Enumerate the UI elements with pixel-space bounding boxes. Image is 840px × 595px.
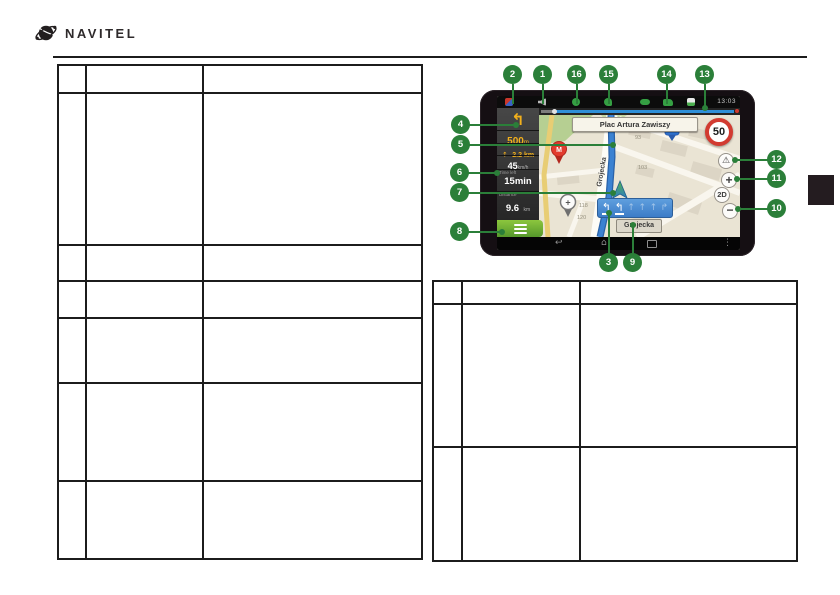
callout-dot	[702, 105, 708, 111]
street-sign: Plac Artura Zawiszy	[572, 117, 698, 132]
table-cell	[463, 305, 579, 446]
lane-arrow-icon: ↑	[638, 203, 646, 214]
callout-number: 3	[606, 257, 611, 268]
lane-arrow-icon: ↑	[650, 203, 658, 214]
device-screen: 13:03	[497, 96, 740, 250]
callout-4: 4	[451, 115, 470, 134]
route-progress-bar	[539, 108, 740, 115]
callout-1: 1	[533, 65, 552, 84]
callout-stem	[512, 84, 514, 104]
callout-number: 11	[771, 173, 781, 184]
callout-stem	[737, 159, 768, 161]
android-nav-bar: ↩ ⌂ ⋮	[497, 237, 740, 250]
table-cell	[204, 246, 421, 280]
header-divider	[53, 56, 807, 58]
table-cell	[87, 246, 202, 280]
callout-dot	[610, 142, 616, 148]
table-cell	[204, 384, 421, 480]
callout-stem	[608, 215, 610, 254]
callout-stem	[468, 172, 495, 174]
callout-2: 2	[503, 65, 522, 84]
table-cell	[204, 319, 421, 382]
maneuver-distance: 500m	[497, 130, 539, 142]
speed-limit-sign: 50	[705, 118, 733, 146]
callout-stem	[542, 84, 544, 104]
table-cell	[434, 448, 461, 560]
home-icon: ⌂	[601, 237, 607, 250]
callout-stem	[740, 208, 768, 210]
house-number: 118	[579, 203, 588, 209]
table-cell	[87, 482, 202, 558]
table-cell	[204, 482, 421, 558]
table-cell	[434, 305, 461, 446]
callout-number: 1	[540, 69, 545, 80]
page-edge-tab	[808, 175, 834, 205]
lane-arrow-icon: ↑	[627, 203, 635, 214]
time-left-label: Time left	[497, 169, 539, 175]
house-number: 93	[635, 135, 641, 141]
callout-stem	[468, 231, 500, 233]
callout-stem	[576, 84, 578, 104]
callout-stem	[469, 124, 514, 126]
table-cell	[204, 94, 421, 244]
brand-name: NAVITEL	[65, 26, 137, 41]
callout-14: 14	[657, 65, 676, 84]
callout-stem	[632, 227, 634, 254]
table-cell	[87, 319, 202, 382]
callout-stem	[608, 84, 610, 104]
legend-table-right	[432, 280, 798, 562]
lane-arrow-icon: ↰	[615, 202, 624, 215]
callout-16: 16	[567, 65, 586, 84]
table-cell	[204, 282, 421, 317]
callout-stem	[468, 192, 610, 194]
time-left-value: 15min	[497, 176, 539, 189]
callout-7: 7	[450, 183, 469, 202]
callout-stem	[469, 144, 610, 146]
legend-table-left	[57, 64, 423, 560]
callout-number: 4	[458, 119, 463, 130]
progress-finish-icon	[735, 109, 739, 113]
manual-page: NAVITEL 13:03	[0, 0, 840, 595]
menu-button	[497, 220, 543, 237]
distance-value: 9.6 km	[497, 198, 539, 211]
callout-8: 8	[450, 222, 469, 241]
callout-dot	[735, 206, 741, 212]
callout-11: 11	[767, 169, 786, 188]
current-street-label: Grojecka	[616, 219, 662, 233]
navitel-logo: NAVITEL	[34, 21, 137, 45]
table-cell	[59, 246, 85, 280]
callout-12: 12	[767, 150, 786, 169]
house-number: 103	[638, 165, 647, 171]
callout-number: 7	[457, 187, 462, 198]
navitel-globe-icon	[34, 21, 58, 45]
table-cell	[87, 66, 202, 92]
table-cell	[581, 448, 796, 560]
table-cell	[434, 282, 461, 303]
table-cell	[581, 282, 796, 303]
callout-number: 13	[699, 69, 710, 80]
hamburger-icon	[514, 228, 527, 230]
callout-number: 9	[630, 257, 635, 268]
overflow-menu-icon: ⋮	[723, 237, 732, 250]
callout-stem	[666, 84, 668, 104]
callout-15: 15	[599, 65, 618, 84]
progress-remaining-segment	[554, 110, 734, 113]
callout-dot	[732, 157, 738, 163]
progress-knob	[552, 109, 557, 114]
back-icon: ↩	[555, 237, 563, 250]
callout-number: 6	[457, 167, 462, 178]
callout-number: 10	[771, 203, 782, 214]
house-number: 120	[577, 215, 586, 221]
view-mode-button: 2D	[714, 187, 730, 203]
callout-dot	[606, 210, 612, 216]
callout-13: 13	[695, 65, 714, 84]
table-cell	[87, 282, 202, 317]
current-speed: 45km/h	[497, 155, 539, 167]
callout-dot	[610, 190, 616, 196]
callout-number: 16	[571, 69, 582, 80]
callout-dot	[499, 229, 505, 235]
table-cell	[87, 94, 202, 244]
callout-5: 5	[451, 135, 470, 154]
callout-number: 8	[457, 226, 462, 237]
table-cell	[581, 305, 796, 446]
traffic-icon	[663, 99, 673, 106]
recents-icon	[647, 240, 657, 248]
callout-dot	[494, 170, 500, 176]
callout-dot	[630, 222, 636, 228]
table-cell	[59, 94, 85, 244]
callout-dot	[734, 176, 740, 182]
callout-number: 12	[771, 154, 782, 165]
callout-stem	[739, 178, 768, 180]
status-clock: 13:03	[717, 98, 736, 105]
table-cell	[59, 282, 85, 317]
table-cell	[59, 66, 85, 92]
callout-9: 9	[623, 253, 642, 272]
lane-arrow-icon: ↱	[661, 203, 669, 214]
callout-number: 14	[661, 69, 672, 80]
callout-number: 15	[603, 69, 614, 80]
table-cell	[87, 384, 202, 480]
table-cell	[59, 482, 85, 558]
table-cell	[59, 319, 85, 382]
callout-3: 3	[599, 253, 618, 272]
callout-dot	[513, 122, 519, 128]
pharmacy-glyph: +	[565, 198, 570, 208]
callout-number: 2	[510, 69, 515, 80]
callout-number: 5	[458, 139, 463, 150]
table-cell	[59, 384, 85, 480]
table-cell	[204, 66, 421, 92]
weather-icon	[640, 99, 650, 105]
notifications-icon	[687, 98, 695, 106]
navigation-panel: ↰ 500m ↑ 2.2 km 45km/h Time left 15min D…	[497, 108, 539, 237]
callout-10: 10	[767, 199, 786, 218]
metro-glyph: M	[556, 147, 562, 154]
callout-6: 6	[450, 163, 469, 182]
table-cell	[463, 448, 579, 560]
table-cell	[463, 282, 579, 303]
